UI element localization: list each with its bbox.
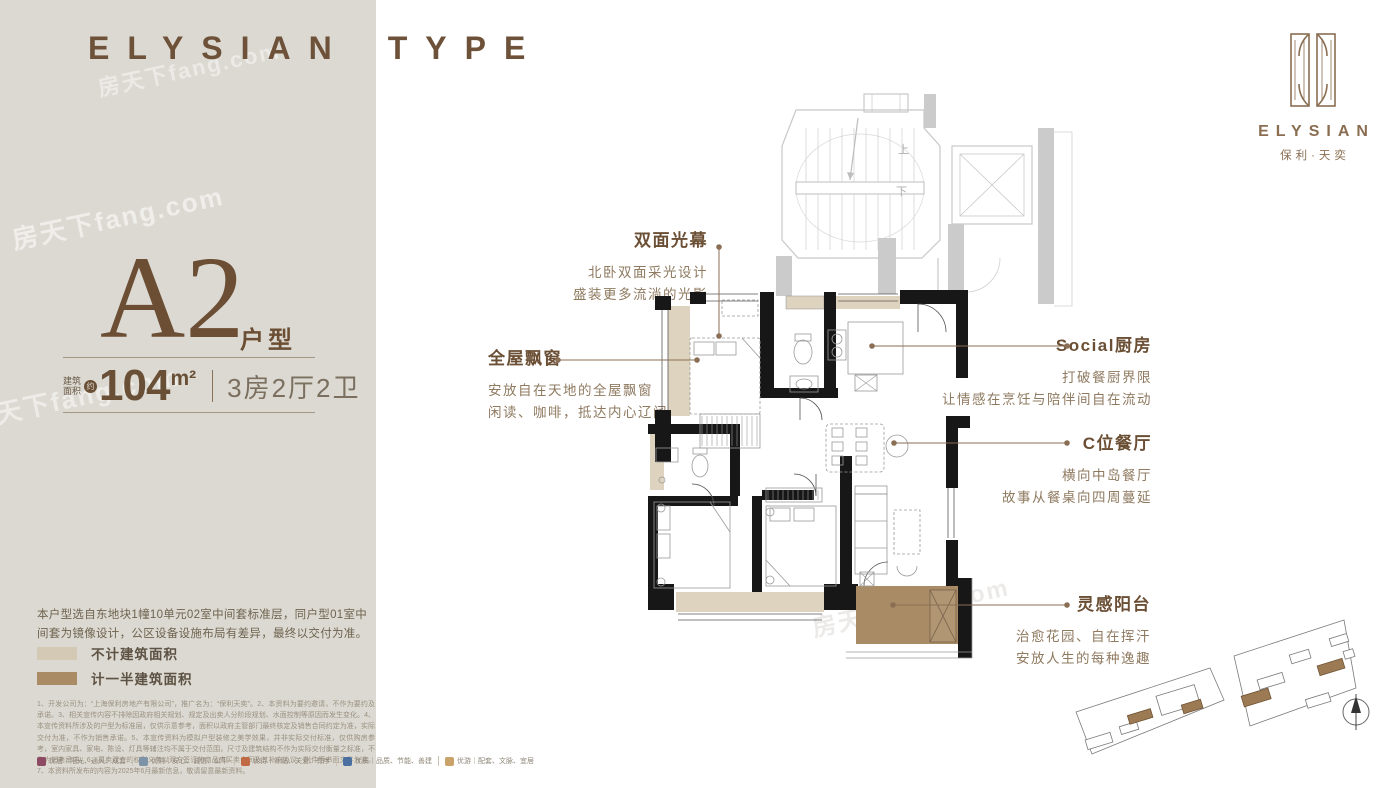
feature-line: 闲读、咖啡，抵达内心辽阔 xyxy=(488,402,668,424)
poster-canvas: 房天下fang.com 房天下fang.com 房天下fang.com 房天下f… xyxy=(0,0,1400,788)
badge-item: 优居｜阳光、通风、成套 xyxy=(37,756,126,766)
legend-item-half-area: 计一半建筑面积 xyxy=(37,671,193,685)
legend-item-no-area: 不计建筑面积 xyxy=(37,646,178,660)
badge-icon xyxy=(139,757,148,766)
feature-line: 故事从餐桌向四周蔓延 xyxy=(1002,487,1152,509)
furniture xyxy=(654,300,920,588)
badge-icon xyxy=(241,757,250,766)
area-unit: m² xyxy=(170,367,196,391)
logo-subtitle: 保利·天奕 xyxy=(1238,147,1388,163)
divider-line-bottom xyxy=(63,412,315,413)
watermark: 房天下fang.com xyxy=(809,568,1013,644)
bay-windows xyxy=(650,296,900,612)
legend-swatch-brown xyxy=(37,672,77,685)
stairs-down-label: 下 xyxy=(896,186,907,198)
area-label: 建筑 面积 xyxy=(63,376,81,397)
feature-line: 打破餐厨界限 xyxy=(942,367,1152,389)
feature-center-dining: C位餐厅 横向中岛餐厅 故事从餐桌向四周蔓延 xyxy=(1002,429,1152,508)
badge-label: 优购｜安心、诚信、公平 xyxy=(151,756,228,766)
door-arcs xyxy=(692,304,946,586)
layout-text: 3房2厅2卫 xyxy=(227,368,360,405)
legend-label: 计一半建筑面积 xyxy=(91,668,193,688)
badge-item: 优购｜安心、诚信、公平 xyxy=(132,756,228,766)
legend-label: 不计建筑面积 xyxy=(91,643,178,663)
badge-item: 优待｜补贴、关爱、有序 xyxy=(234,756,330,766)
feature-bay-window: 全屋飘窗 安放自在天地的全屋飘窗 闲读、咖啡，抵达内心辽阔 xyxy=(488,344,668,423)
badge-row: 优居｜阳光、通风、成套 优购｜安心、诚信、公平 优待｜补贴、关爱、有序 优质｜品… xyxy=(37,756,534,766)
vertical-divider xyxy=(212,370,213,402)
area-label-line2: 面积 xyxy=(63,386,81,396)
plan-note: 本户型选自东地块1幢10单元02室中间套标准层，同户型01室中间套为镜像设计，公… xyxy=(37,606,369,644)
badge-icon xyxy=(343,757,352,766)
compass-icon xyxy=(1343,694,1369,730)
feature-title: 灵感阳台 xyxy=(1016,590,1151,615)
core-stairwell xyxy=(782,94,1072,306)
brand-word-elysian: ELYSIAN xyxy=(88,30,350,67)
feature-line: 北卧双面采光设计 xyxy=(573,262,708,284)
core-wall-fills xyxy=(776,94,1054,304)
feature-line: 横向中岛餐厅 xyxy=(1002,465,1152,487)
brand-header: ELYSIAN TYPE xyxy=(88,30,543,67)
feature-line: 盛装更多流淌的光影 xyxy=(573,284,708,306)
feature-title: C位餐厅 xyxy=(1002,429,1152,454)
feature-double-light-curtain: 双面光幕 北卧双面采光设计 盛装更多流淌的光影 xyxy=(573,226,708,305)
divider-line-top xyxy=(63,357,315,358)
unit-code: A2 xyxy=(100,242,244,354)
badge-label: 优居｜阳光、通风、成套 xyxy=(49,756,126,766)
logo-emblem-icon xyxy=(1283,30,1343,110)
feature-line: 让情感在烹饪与陪伴间自在流动 xyxy=(942,389,1152,411)
window-lines xyxy=(662,294,954,620)
badge-item: 优质｜品质、节能、善建 xyxy=(336,756,432,766)
stairs-up-label: 上 xyxy=(898,143,909,156)
feature-title: 双面光幕 xyxy=(573,226,708,251)
badge-icon xyxy=(445,757,454,766)
feature-inspiration-balcony: 灵感阳台 治愈花园、自在挥汗 安放人生的每种逸趣 xyxy=(1016,590,1151,669)
approx-badge: 约 xyxy=(84,380,97,393)
feature-title: Social厨房 xyxy=(942,331,1152,356)
badge-icon xyxy=(37,757,46,766)
badge-label: 优游｜配套、文脉、宜居 xyxy=(457,756,534,766)
area-label-line1: 建筑 xyxy=(63,376,81,386)
balcony xyxy=(846,578,972,658)
unit-code-suffix: 户型 xyxy=(240,320,296,355)
feature-line: 安放人生的每种逸趣 xyxy=(1016,648,1151,670)
feature-line: 安放自在天地的全屋飘窗 xyxy=(488,380,668,402)
feature-line: 治愈花园、自在挥汗 xyxy=(1016,626,1151,648)
badge-label: 优质｜品质、节能、善建 xyxy=(355,756,432,766)
area-row: 建筑 面积 约 104 m² 3房2厅2卫 xyxy=(63,362,361,410)
brand-word-type: TYPE xyxy=(388,30,544,67)
feature-social-kitchen: Social厨房 打破餐厨界限 让情感在烹饪与陪伴间自在流动 xyxy=(942,331,1152,410)
unit-walls xyxy=(648,290,972,658)
badge-label: 优待｜补贴、关爱、有序 xyxy=(253,756,330,766)
badge-item: 优游｜配套、文脉、宜居 xyxy=(438,756,534,766)
feature-title: 全屋飘窗 xyxy=(488,344,668,369)
legend-swatch-light xyxy=(37,647,77,660)
area-number: 104 xyxy=(99,364,169,408)
brand-logo: ELYSIAN 保利·天奕 xyxy=(1238,30,1388,163)
logo-name: ELYSIAN xyxy=(1238,123,1388,141)
